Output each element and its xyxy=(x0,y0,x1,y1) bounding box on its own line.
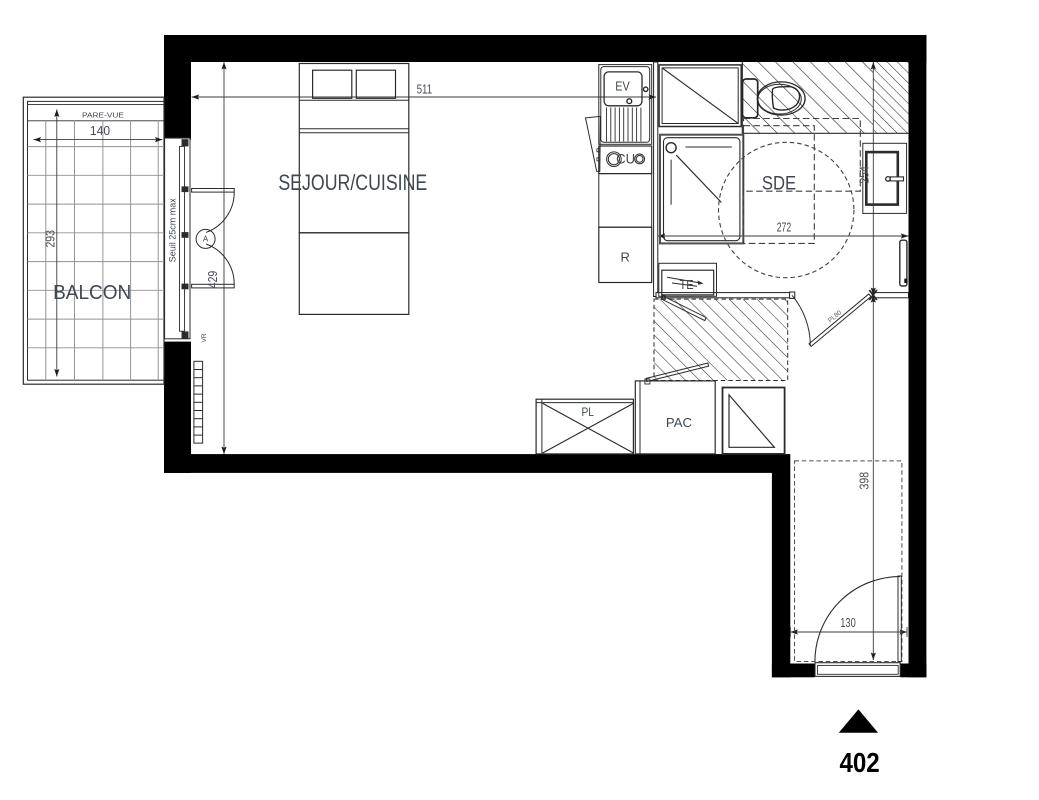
svg-text:PARE-VUE: PARE-VUE xyxy=(82,110,124,119)
svg-text:130: 130 xyxy=(840,616,856,630)
svg-text:Seuil 25cm max: Seuil 25cm max xyxy=(167,198,177,262)
svg-text:VR: VR xyxy=(201,333,208,342)
svg-text:CU: CU xyxy=(616,151,635,167)
svg-text:140: 140 xyxy=(90,124,110,138)
svg-text:PAC: PAC xyxy=(666,416,692,430)
svg-text:272: 272 xyxy=(777,221,792,235)
svg-text:PL: PL xyxy=(581,407,594,419)
svg-text:402: 402 xyxy=(839,747,879,778)
svg-text:511: 511 xyxy=(417,83,433,97)
svg-text:293: 293 xyxy=(44,230,58,248)
svg-text:BALCON: BALCON xyxy=(53,281,131,304)
svg-text:398: 398 xyxy=(858,472,872,490)
svg-text:SEJOUR/CUISINE: SEJOUR/CUISINE xyxy=(278,170,427,195)
svg-text:A: A xyxy=(203,235,209,244)
svg-text:SDE: SDE xyxy=(762,173,796,195)
svg-text:254: 254 xyxy=(858,166,872,184)
svg-text:TE: TE xyxy=(680,278,694,292)
svg-text:R: R xyxy=(621,249,630,264)
svg-text:429: 429 xyxy=(206,271,220,289)
svg-text:EV: EV xyxy=(615,79,630,94)
